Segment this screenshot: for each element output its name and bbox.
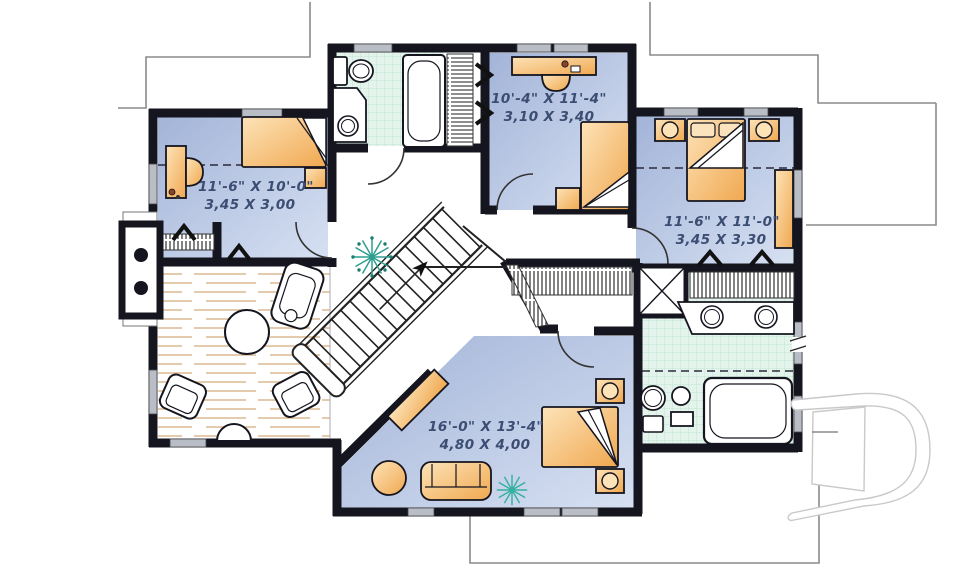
toilet-tank <box>333 57 347 85</box>
linen-closet-shelf <box>447 54 473 146</box>
sink-basin <box>342 120 355 133</box>
ottoman <box>372 461 406 495</box>
nightstand <box>556 188 580 210</box>
wall-break-symbol <box>790 336 806 352</box>
bathtub-basin <box>408 61 440 141</box>
window <box>170 439 206 447</box>
bedroom-master-dim-metric: 4,80 X 4,00 <box>439 437 531 453</box>
desk-lamp-icon <box>169 189 175 195</box>
bathroom-wardrobe-shelf <box>690 272 794 298</box>
toilet-tank <box>643 416 663 432</box>
desk-accessory <box>571 66 580 72</box>
flue-icon <box>134 248 148 262</box>
window <box>794 170 802 218</box>
window <box>149 370 157 414</box>
plant-icon <box>351 236 392 277</box>
shower-icon <box>638 266 686 316</box>
window <box>517 44 551 52</box>
pillow <box>691 123 715 137</box>
bedroom-left-dim-imperial: 11'-6" X 10'-0" <box>198 179 314 195</box>
desk <box>166 146 186 198</box>
bedroom-top-dim-metric: 3,10 X 3,40 <box>504 109 595 125</box>
bedroom-right-dim-imperial: 11'-6" X 11'-0" <box>664 214 780 230</box>
floor-plan-svg: 10'-4" X 11'-4" 3,10 X 3,40 11'-6" X 10'… <box>0 0 960 569</box>
desk <box>512 57 596 75</box>
bedroom-top-dim-imperial: 10'-4" X 11'-4" <box>491 91 607 107</box>
window <box>562 508 598 516</box>
window <box>408 508 434 516</box>
lamp-icon <box>662 122 678 138</box>
bedroom-right-dim-metric: 3,45 X 3,30 <box>676 232 767 248</box>
stool-base <box>671 412 693 426</box>
sink-basin <box>705 310 720 325</box>
dresser <box>775 170 793 248</box>
lamp-icon <box>602 473 618 489</box>
desk-accessory <box>176 195 180 199</box>
lamp-icon <box>602 383 618 399</box>
drummond-d-logo <box>788 393 930 520</box>
desk-lamp-icon <box>562 61 568 67</box>
window <box>554 44 588 52</box>
lamp-icon <box>756 122 772 138</box>
flue-icon <box>134 281 148 295</box>
window <box>524 508 560 516</box>
window <box>149 164 157 204</box>
window <box>744 108 768 116</box>
window <box>664 108 698 116</box>
bathtub-basin <box>710 384 786 438</box>
toilet-bowl <box>645 390 662 407</box>
bedroom-master-dim-imperial: 16'-0" X 13'-4" <box>428 419 544 435</box>
toilet-bowl <box>353 64 369 78</box>
window <box>242 109 282 117</box>
window <box>354 44 392 52</box>
loveseat <box>421 462 491 500</box>
door-swing <box>368 148 404 184</box>
bedroom-left-dim-metric: 3,45 X 3,00 <box>205 197 296 213</box>
round-table <box>225 310 269 354</box>
stool-icon <box>672 387 690 405</box>
chimney <box>122 212 160 326</box>
left-bedroom-closet-shelf <box>156 234 214 250</box>
sink-basin <box>759 310 774 325</box>
floor-plan: 10'-4" X 11'-4" 3,10 X 3,40 11'-6" X 10'… <box>0 0 960 569</box>
desk-chair <box>542 75 570 91</box>
